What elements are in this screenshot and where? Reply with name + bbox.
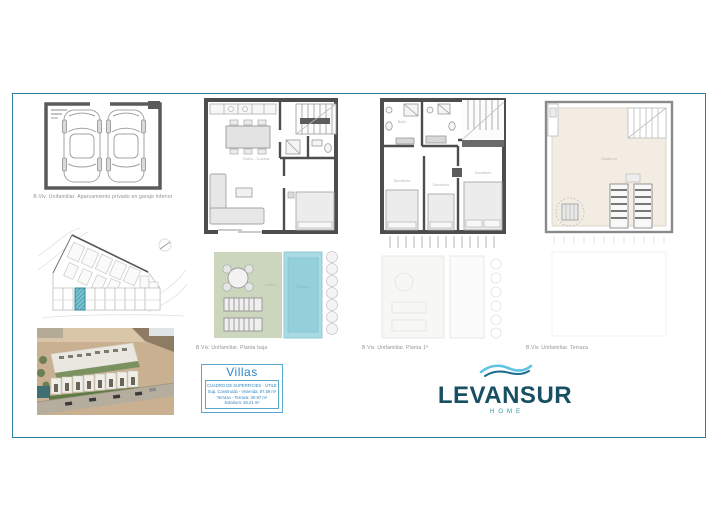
highlighted-villa-unit [75, 288, 85, 310]
ghost-railing [552, 236, 666, 336]
aerial-render-photo [37, 328, 174, 415]
garden-label: Jardín [264, 282, 275, 287]
pool: Piscina [284, 252, 322, 338]
roof-terrace-caption: B.Viv. Unifamiliar. Terraza [526, 345, 588, 351]
bed-1 [386, 190, 418, 230]
pool-patch [37, 386, 50, 398]
balcony-railing [390, 236, 494, 248]
solarium-label: Solarium [601, 156, 617, 161]
logo-tagline: HOME [420, 409, 590, 415]
logo-name: LEVANSUR [420, 384, 590, 408]
plant-border [327, 252, 338, 335]
garage-door-gap [90, 101, 110, 107]
stairs [628, 108, 666, 138]
levansur-logo: LEVANSUR HOME [420, 362, 590, 415]
first-floor-plan: Baño Dormitorio Dormitorio Dormitorio [362, 96, 510, 346]
surface-line-1: CUADRO DE SUPERFICIES - ÚTILES [207, 383, 277, 389]
stairs [462, 100, 504, 147]
surface-line-4: Solarium: 36.21 m² [207, 400, 277, 406]
villas-title: Villas [202, 365, 282, 380]
garage-caption: B.Viv. Unifamiliar. Aparcamiento privado… [28, 194, 178, 200]
surface-table: CUADRO DE SUPERFICIES - ÚTILES Sup. Cons… [205, 380, 279, 409]
bedroom1-label: Dormitorio [394, 179, 411, 183]
bath-label: Baño [398, 120, 406, 124]
ghost-outline [382, 256, 501, 338]
stairs [296, 104, 336, 134]
garage-pillar [148, 101, 160, 109]
first-floor-caption: B.Viv. Unifamiliar. Planta 1ª [362, 345, 428, 351]
living-room-label: Salón - Cocina [243, 156, 270, 161]
roof-terrace-plan: Solarium [522, 96, 700, 346]
surface-line-2: Sup. Construida - Vivienda: 97.59 m² [207, 389, 277, 395]
villa-row-units [53, 288, 160, 310]
ground-floor-plan: Salón - Cocina Jardín [200, 96, 346, 346]
wave-icon [475, 362, 535, 379]
villas-info-box: Villas CUADRO DE SUPERFICIES - ÚTILES Su… [201, 364, 283, 413]
service-notch [548, 104, 558, 136]
bed-2 [428, 194, 454, 230]
terrace-door [218, 228, 262, 234]
pool-label: Piscina [297, 284, 311, 289]
site-plan [36, 226, 188, 322]
bedroom3-label: Dormitorio [475, 171, 492, 175]
bedroom2-label: Dormitorio [433, 183, 450, 187]
background-building [149, 328, 174, 336]
kitchen-counter [210, 104, 276, 114]
plan-sheet: B.Viv. Unifamiliar. Aparcamiento privado… [0, 0, 720, 512]
dining-island [226, 120, 270, 154]
ground-floor-caption: B.Viv. Unifamiliar. Planta baja [196, 345, 267, 351]
garage-floor-plan [42, 100, 164, 192]
